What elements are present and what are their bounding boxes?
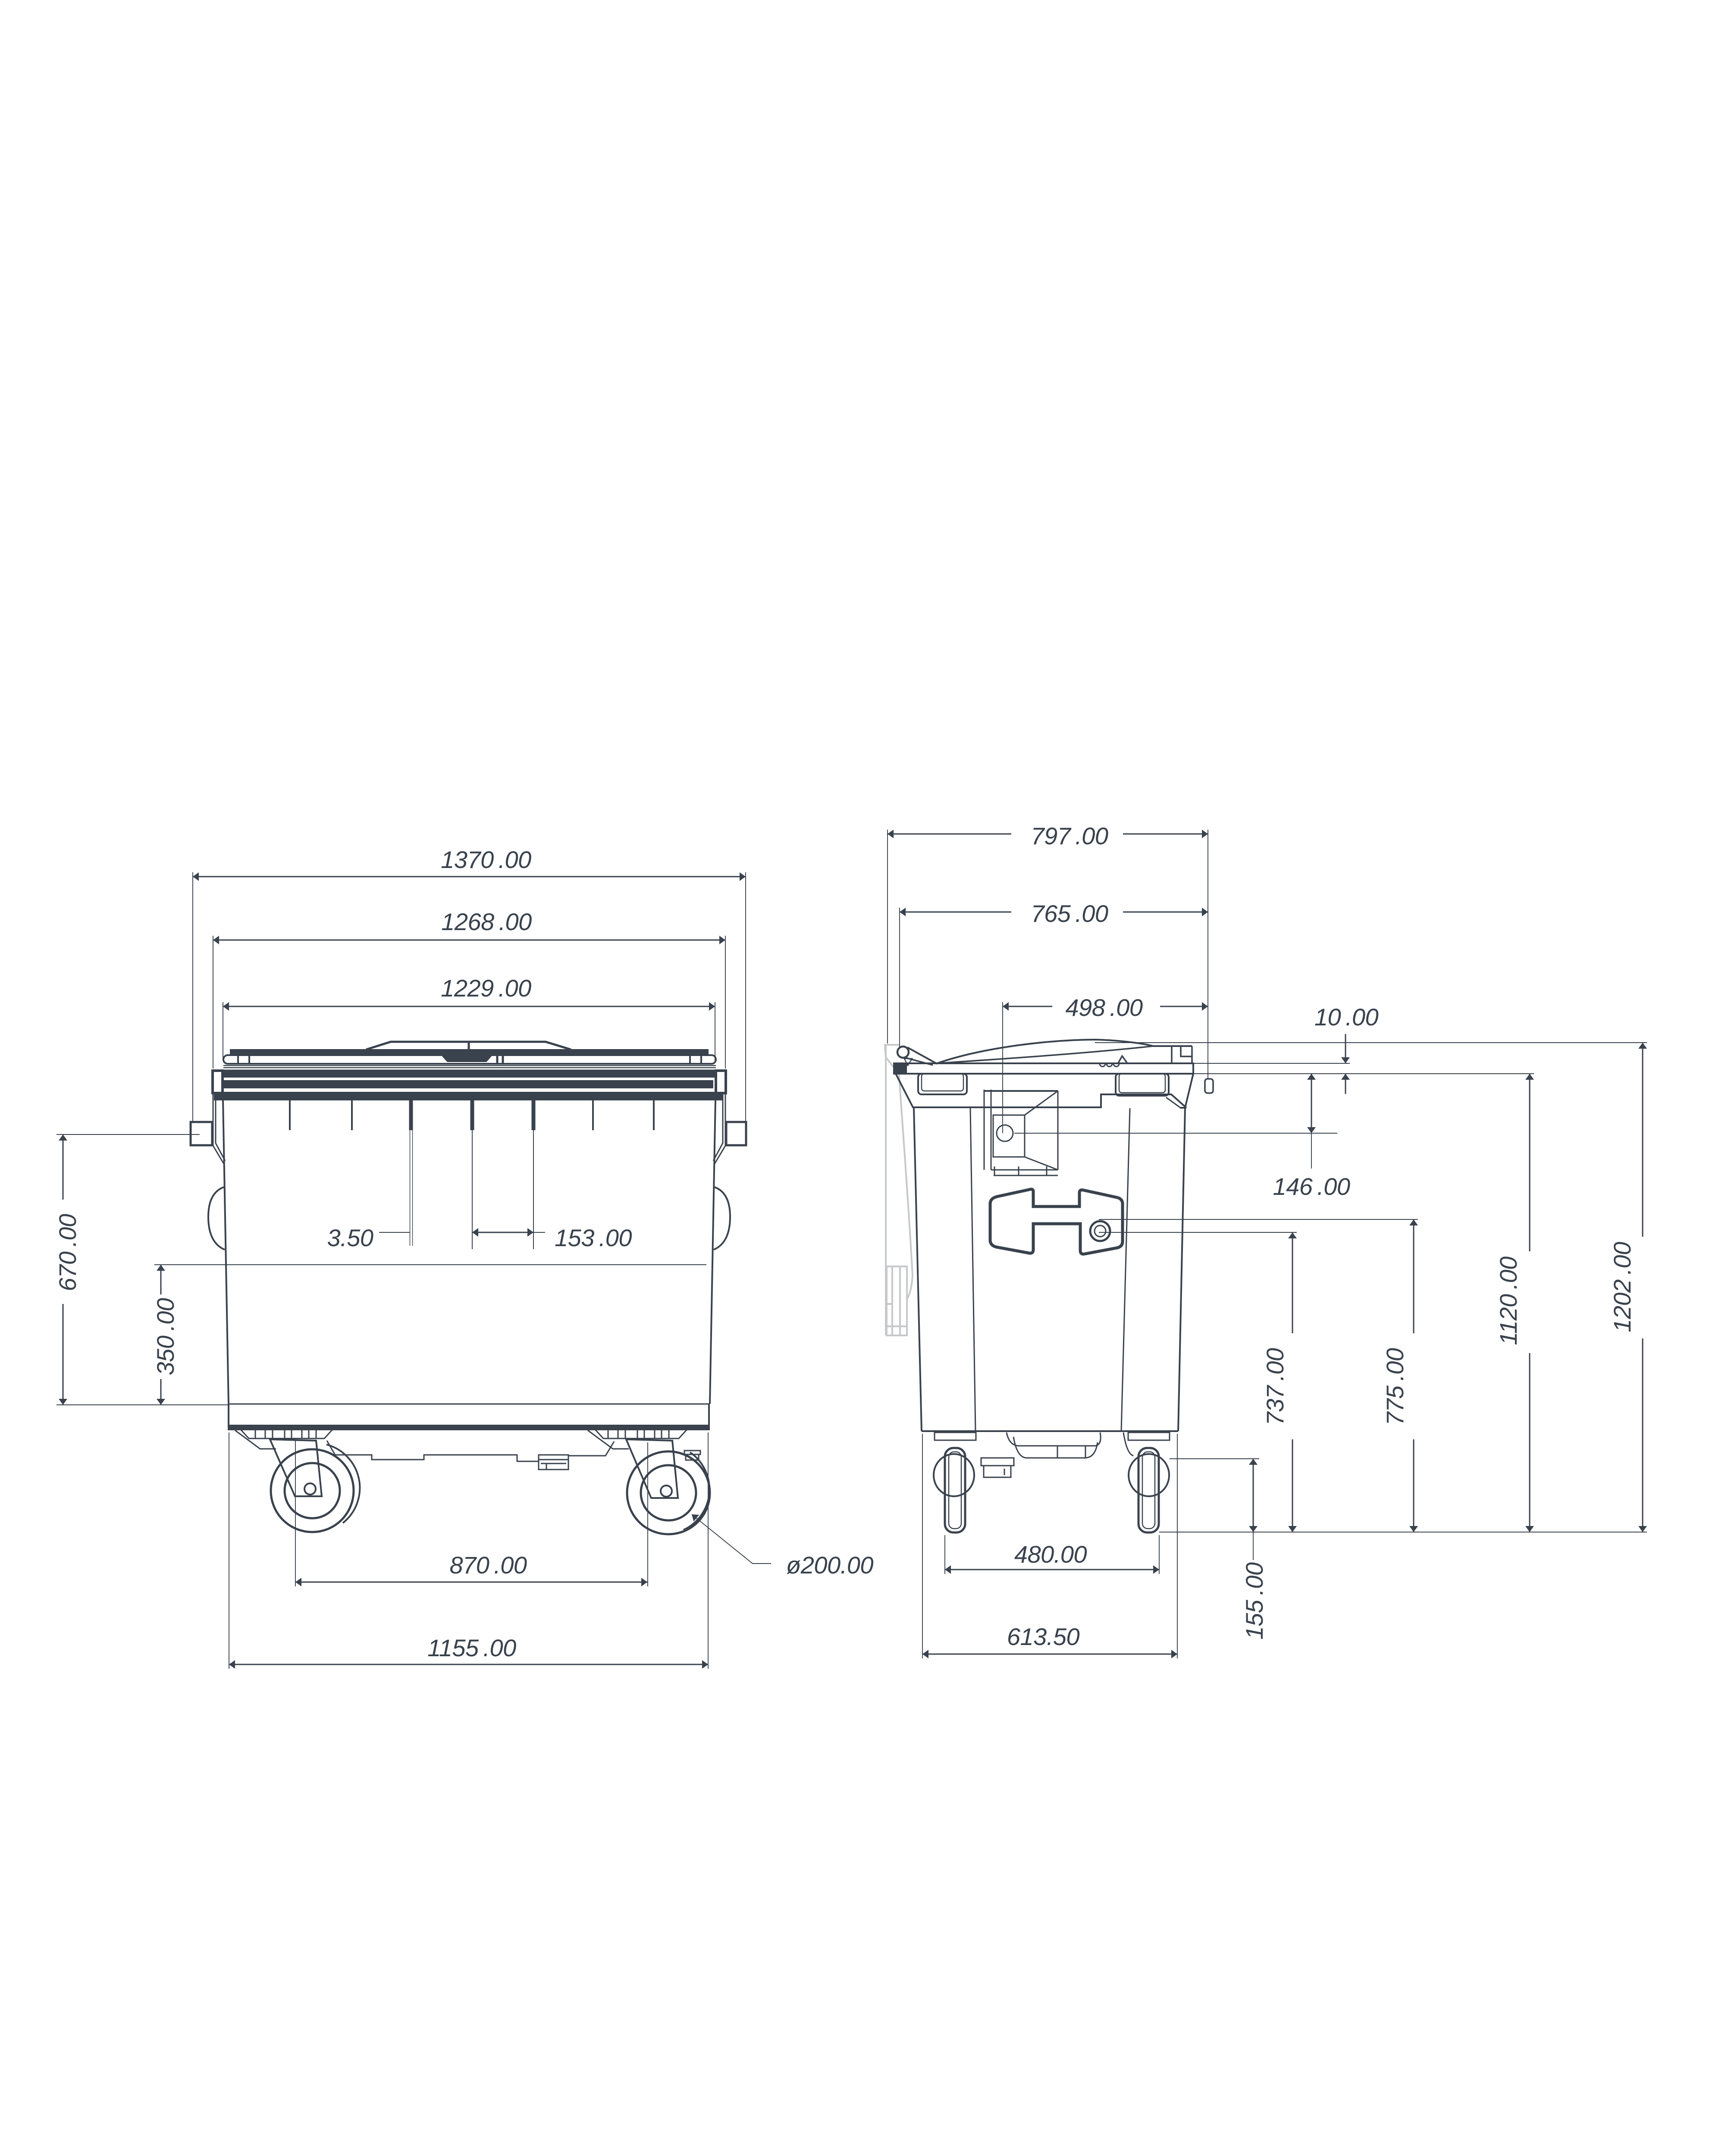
svg-text:1268 .00: 1268 .00 <box>441 908 532 935</box>
svg-text:1370 .00: 1370 .00 <box>441 846 531 873</box>
svg-text:765 .00: 765 .00 <box>1031 900 1108 927</box>
svg-text:10 .00: 10 .00 <box>1314 1003 1379 1031</box>
svg-text:350 .00: 350 .00 <box>152 1298 179 1375</box>
svg-text:480.00: 480.00 <box>1014 1541 1087 1568</box>
svg-text:613.50: 613.50 <box>1007 1623 1080 1650</box>
svg-text:155 .00: 155 .00 <box>1241 1562 1268 1639</box>
svg-text:870 .00: 870 .00 <box>450 1551 527 1579</box>
svg-text:797 .00: 797 .00 <box>1031 822 1108 849</box>
svg-text:1120 .00: 1120 .00 <box>1495 1257 1522 1345</box>
svg-text:1202 .00: 1202 .00 <box>1609 1242 1636 1332</box>
svg-text:737 .00: 737 .00 <box>1261 1348 1289 1425</box>
svg-text:153 .00: 153 .00 <box>555 1224 632 1251</box>
svg-text:ø200.00: ø200.00 <box>786 1551 873 1579</box>
svg-text:1229 .00: 1229 .00 <box>441 975 531 1002</box>
svg-text:1155 .00: 1155 .00 <box>427 1634 516 1661</box>
svg-text:775 .00: 775 .00 <box>1381 1348 1408 1425</box>
svg-text:146 .00: 146 .00 <box>1273 1173 1350 1200</box>
svg-text:498 .00: 498 .00 <box>1066 994 1143 1021</box>
svg-text:670 .00: 670 .00 <box>54 1214 81 1291</box>
svg-text:3.50: 3.50 <box>327 1224 373 1251</box>
